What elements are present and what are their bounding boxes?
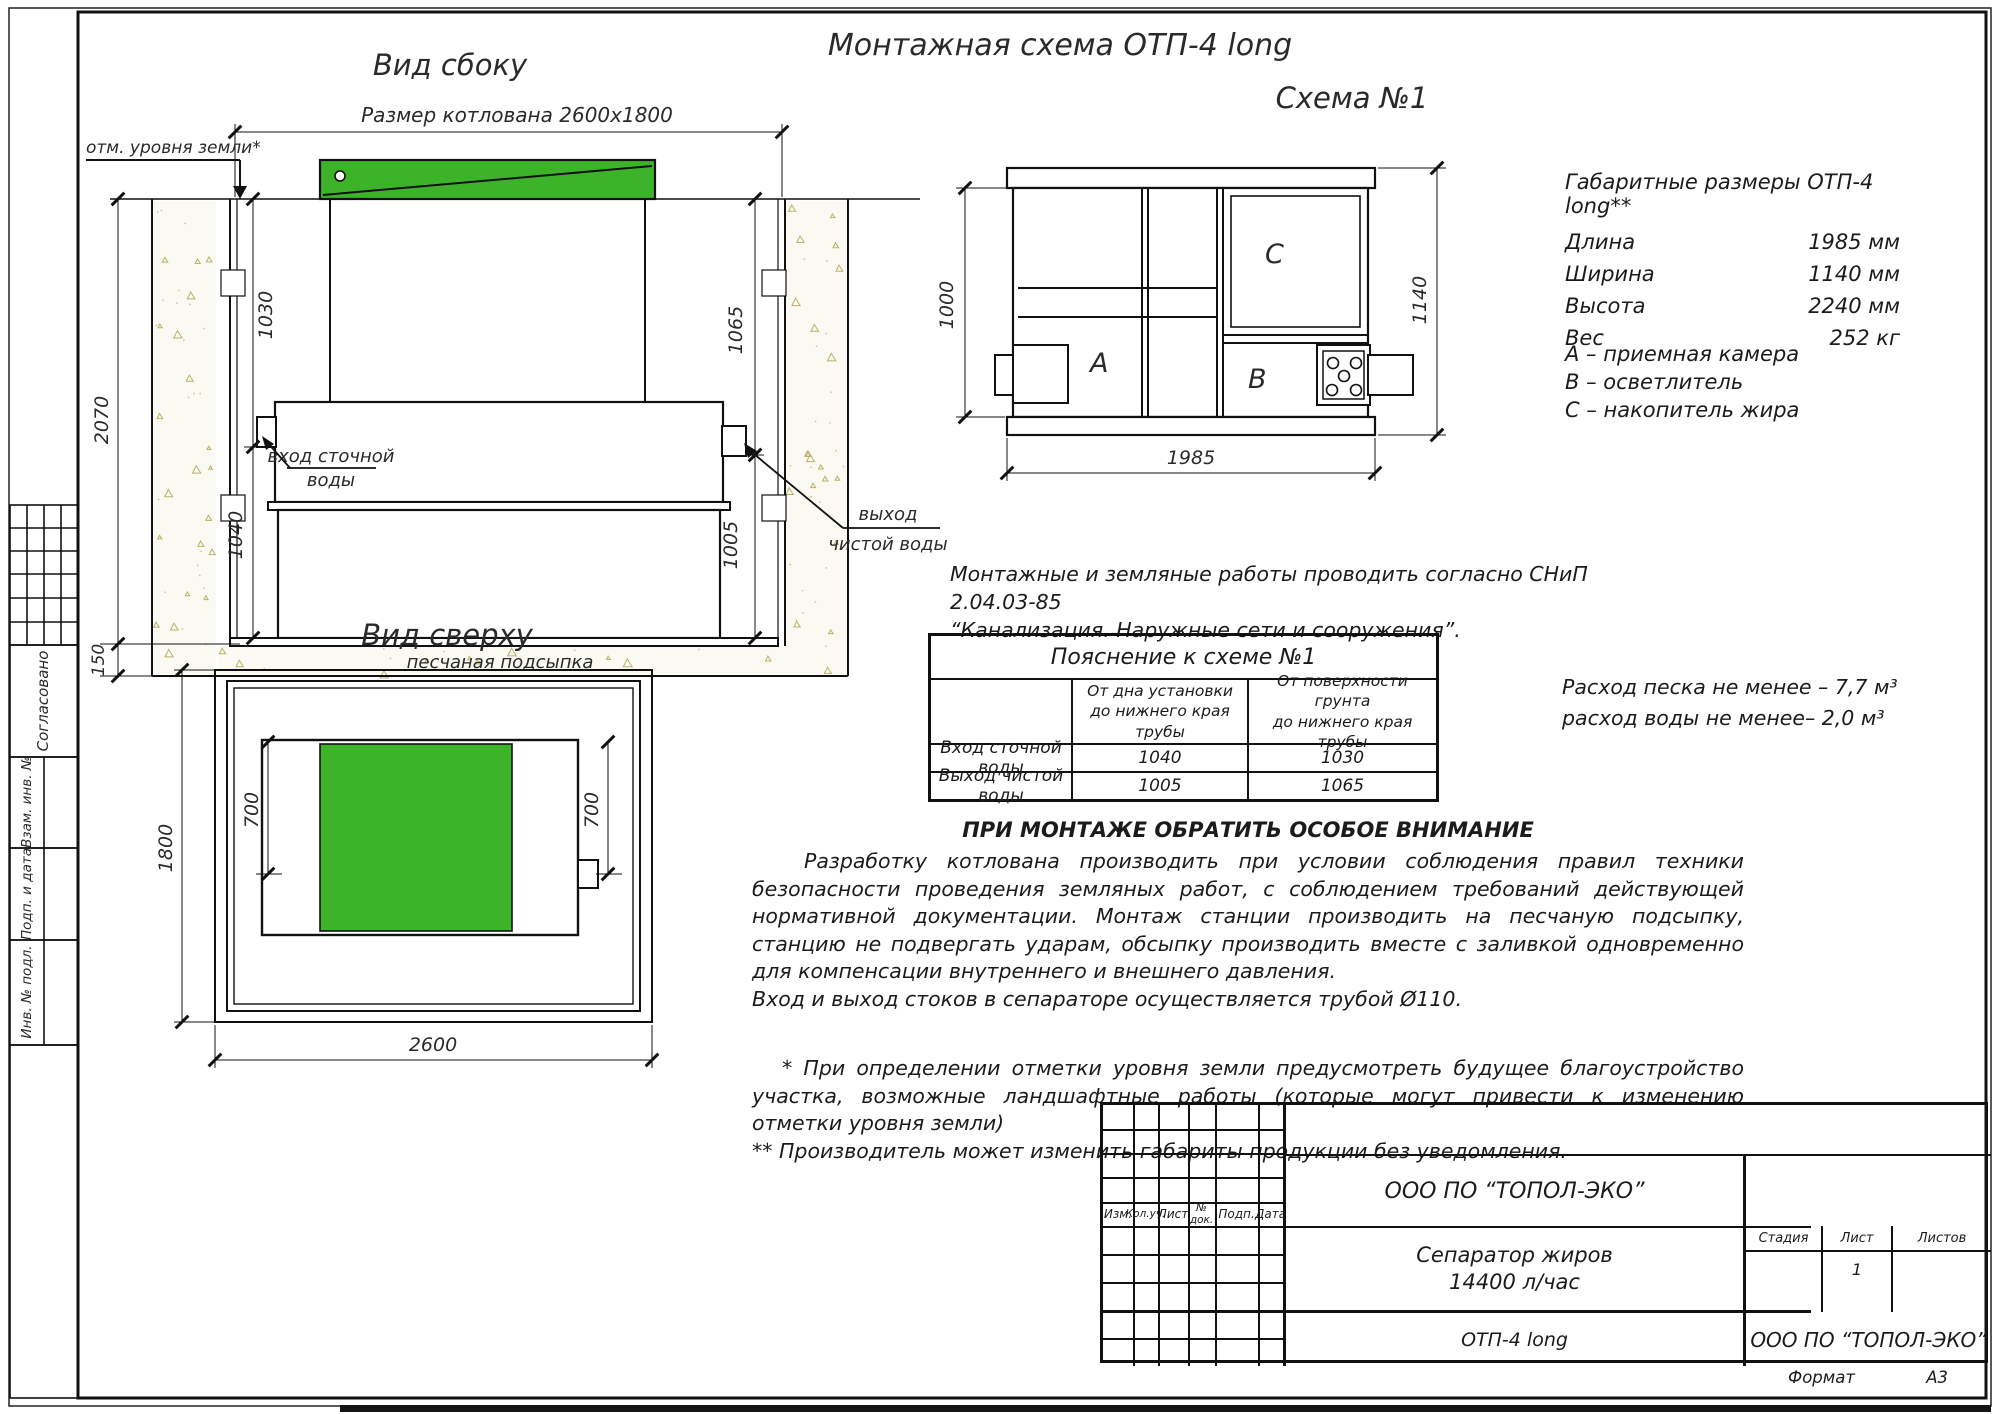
spec-value: 1140 мм: [1808, 262, 1900, 294]
ground-level-label: отм. уровня земли*: [86, 138, 261, 158]
format-value: А3: [1926, 1368, 1948, 1387]
dim-1030: 1030: [255, 291, 277, 339]
legend-item-b: В – осветлитель: [1565, 368, 1799, 396]
dim-1140: 1140: [1409, 276, 1431, 324]
legend-item-a: А – приемная камера: [1565, 340, 1799, 368]
top-view-nozzle: [578, 860, 598, 888]
compartment-b-label: В: [1248, 364, 1267, 395]
lid-bolt: [335, 171, 345, 181]
title-block: Изм. Кол.уч. Лист № док. Подп. Дата ООО …: [1100, 1102, 1988, 1363]
top-view-green-lid: [320, 744, 512, 931]
dim-1800: 1800: [155, 824, 177, 872]
dim-1985: 1985: [1167, 447, 1215, 469]
scheme-drawing: [995, 168, 1413, 435]
format-label: Формат: [1788, 1368, 1855, 1387]
side-view-title: Вид сбоку: [373, 48, 528, 82]
scheme-right-nozzle: [1368, 355, 1413, 395]
sidebar-label-agreed: Согласовано: [34, 651, 52, 752]
top-view-title: Вид сверху: [361, 618, 533, 652]
sand-consumption: Расход песка не менее – 7,7 м³: [1562, 672, 1982, 703]
spec-label: Ширина: [1565, 262, 1655, 294]
stamp-col-data: Дата: [1258, 1202, 1283, 1226]
stamp-model: ОТП-4 long: [1286, 1313, 1743, 1366]
dim-1005: 1005: [720, 521, 742, 569]
overall-dimensions-block: Габаритные размеры ОТП-4 long** Длина 19…: [1565, 170, 1900, 358]
outlet-label-line2: чистой воды: [828, 534, 947, 555]
compartment-legend: А – приемная камера В – осветлитель С – …: [1565, 340, 1799, 424]
pit-size-label: Размер котлована 2600х1800: [361, 103, 673, 127]
compartment-a-label: А: [1088, 348, 1108, 379]
stamp-company-top: ООО ПО “ТОПОЛ-ЭКО”: [1286, 1156, 1743, 1226]
stamp-sheet-value: 1: [1823, 1252, 1891, 1286]
scan-artifact-bar: [340, 1405, 1991, 1412]
attention-paragraph: Разработку котлована производить при усл…: [752, 848, 1744, 986]
table-cell: 1005: [1073, 773, 1249, 799]
scheme-title: Схема №1: [1276, 81, 1429, 115]
dim-2070: 2070: [91, 396, 113, 444]
page-title: Монтажная схема ОТП-4 long: [828, 28, 1292, 63]
table-header-from-ground: От поверхности грунта до нижнего края тр…: [1249, 680, 1436, 745]
stamp-stage-label: Стадия: [1746, 1226, 1821, 1250]
dim-700-left: 700: [241, 792, 263, 828]
dim-1065: 1065: [725, 306, 747, 354]
attention-heading: ПРИ МОНТАЖЕ ОБРАТИТЬ ОСОБОЕ ВНИМАНИЕ: [752, 818, 1744, 842]
sidebar-label-sign-date: Подп. и дата: [19, 848, 35, 940]
consumption-note: Расход песка не менее – 7,7 м³ расход во…: [1562, 672, 1982, 734]
explanation-table: Пояснение к схеме №1 От дна установки до…: [928, 633, 1439, 802]
stamp-col-ndok: № док.: [1188, 1202, 1215, 1226]
dim-700-right: 700: [581, 792, 603, 828]
specs-title: Габаритные размеры ОТП-4 long**: [1565, 170, 1900, 218]
attention-paragraph-pipe: Вход и выход стоков в сепараторе осущест…: [752, 986, 1744, 1014]
stamp-col-podp: Подп.: [1215, 1202, 1258, 1226]
spec-value: 1985 мм: [1808, 230, 1900, 262]
product-name-line2: 14400 л/час: [1449, 1269, 1580, 1296]
stamp-col-koluch: Кол.уч.: [1133, 1202, 1158, 1226]
format-note: Формат А3: [1788, 1368, 1948, 1387]
spec-row-height: Высота 2240 мм: [1565, 294, 1900, 326]
outlet-label-line1: выход: [859, 504, 918, 525]
stamp-product-name: Сепаратор жиров 14400 л/час: [1286, 1228, 1743, 1310]
water-consumption: расход воды не менее– 2,0 м³: [1562, 703, 1982, 734]
stamp-sheet-label: Лист: [1823, 1226, 1891, 1250]
spec-row-length: Длина 1985 мм: [1565, 230, 1900, 262]
sidebar-label-inv-orig: Инв. № подл.: [19, 945, 35, 1038]
table-header-from-bottom: От дна установки до нижнего края трубы: [1073, 680, 1249, 745]
scheme-receiver-box: [1013, 345, 1068, 403]
dim-150: 150: [89, 644, 109, 676]
table-header-empty: [931, 680, 1073, 745]
drawing-sheet: Согласовано Взам. инв. № Подп. и дата Ин…: [0, 0, 2000, 1414]
snip-note: Монтажные и земляные работы проводить со…: [950, 560, 1630, 644]
inlet-label-line2: воды: [307, 470, 355, 491]
outlet-nozzle: [722, 426, 746, 456]
table-cell: 1065: [1249, 773, 1436, 799]
stamp-sheets-label: Листов: [1893, 1226, 1991, 1250]
dim-1040: 1040: [225, 511, 247, 559]
snip-note-line1: Монтажные и земляные работы проводить со…: [950, 560, 1630, 616]
legend-item-c: С – накопитель жира: [1565, 396, 1799, 424]
spec-label: Высота: [1565, 294, 1645, 326]
stamp-col-list: Лист: [1158, 1202, 1188, 1226]
spec-value: 252 кг: [1830, 326, 1900, 358]
stamp-company-bottom: ООО ПО “ТОПОЛ-ЭКО”: [1746, 1313, 1991, 1366]
dim-1000: 1000: [936, 281, 958, 329]
compartment-c-label: С: [1265, 239, 1284, 270]
product-name-line1: Сепаратор жиров: [1416, 1242, 1613, 1269]
sidebar-label-inv-replace: Взам. инв. №: [19, 756, 35, 848]
table-cell: 1040: [1073, 745, 1249, 773]
scheme-left-nozzle: [995, 355, 1013, 395]
table-cell: 1030: [1249, 745, 1436, 773]
spec-row-width: Ширина 1140 мм: [1565, 262, 1900, 294]
spec-label: Длина: [1565, 230, 1635, 262]
dim-2600: 2600: [409, 1034, 457, 1056]
table-row-name: Выход чистой воды: [931, 773, 1073, 799]
spec-value: 2240 мм: [1808, 294, 1900, 326]
